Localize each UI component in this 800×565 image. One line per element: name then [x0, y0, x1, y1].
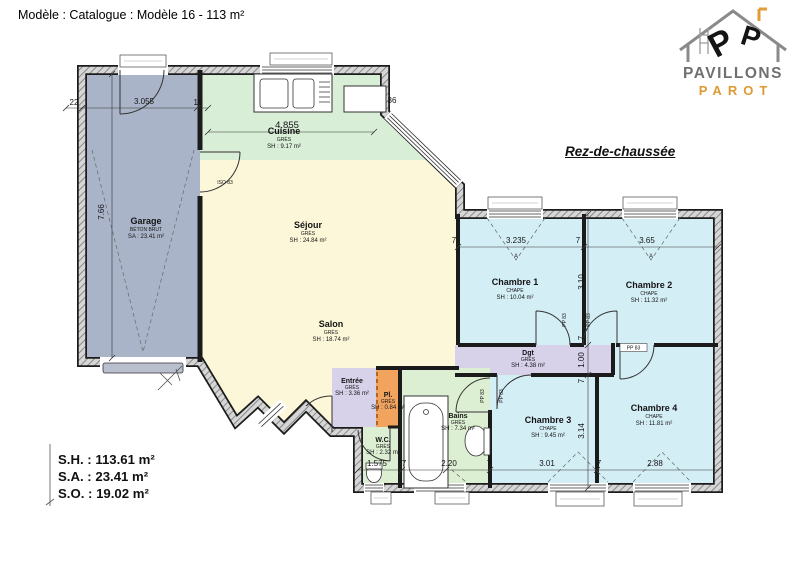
washbasin-counter — [484, 428, 490, 455]
dim-text: 7 — [577, 378, 586, 383]
floor-plan-page: Modèle : Catalogue : Modèle 16 - 113 m² … — [0, 0, 800, 565]
room-material-entree: GRÈS — [345, 384, 360, 391]
room-area-chambre3: SH : 9.45 m² — [531, 433, 565, 439]
sink-bowl-left — [260, 79, 288, 108]
room-material-salon: GRÈS — [324, 329, 339, 336]
dim-text: 3.10 — [577, 274, 586, 290]
room-area-placard: SH : 0.84 m² — [371, 405, 405, 411]
dim-text: 36 — [388, 96, 397, 105]
room-material-dgt: GRÈS — [521, 356, 536, 363]
dim-text: 22 — [70, 98, 79, 107]
room-area-wc: SH : 2.32 m² — [366, 450, 400, 456]
room-area-garage: SA : 23.41 m² — [128, 234, 164, 240]
room-area-chambre2: SH : 11.32 m² — [631, 298, 668, 304]
room-material-bains: GRÈS — [451, 419, 466, 426]
room-name-chambre3: Chambre 3 — [525, 415, 572, 425]
room-area-dgt: SH : 4.38 m² — [511, 363, 545, 369]
pp-door-label: PP 83 — [562, 313, 568, 327]
iso-door-label: ISO 83 — [217, 180, 233, 186]
room-area-chambre1: SH : 10.04 m² — [496, 295, 533, 301]
room-material-cuisine: GRÈS — [277, 136, 292, 143]
room-material-chambre4: CHAPE — [645, 414, 663, 420]
room-material-wc: GRÈS — [376, 443, 391, 450]
dim-text: 1.00 — [577, 352, 586, 368]
window-swing-mark: A — [649, 254, 653, 260]
water-heater — [344, 86, 386, 112]
room-name-salon: Salon — [319, 319, 344, 329]
room-name-sejour: Séjour — [294, 220, 323, 230]
room-name-placard: Pl. — [384, 392, 393, 399]
room-name-cuisine: Cuisine — [268, 126, 301, 136]
dim-text: 3.01 — [539, 459, 555, 468]
dim-text: 15 — [194, 98, 203, 107]
dim-text: 7 — [487, 459, 492, 468]
room-material-chambre2: CHAPE — [640, 291, 658, 297]
pp-door-label: PP 83 — [499, 389, 505, 403]
room-area-sejour: SH : 24.84 m² — [289, 238, 326, 244]
garage-door-leaf — [103, 363, 183, 373]
room-name-chambre4: Chambre 4 — [631, 403, 678, 413]
room-material-garage: BÉTON BRUT — [130, 226, 162, 233]
dim-text: 7 — [452, 236, 457, 245]
room-name-chambre1: Chambre 1 — [492, 277, 539, 287]
dim-text: 7.66 — [97, 204, 106, 220]
room-name-wc: W.C. — [375, 437, 390, 444]
room-material-chambre3: CHAPE — [539, 426, 557, 432]
dim-text: 7 — [577, 335, 586, 340]
room-area-bains: SH : 7.34 m² — [441, 426, 475, 432]
room-name-chambre2: Chambre 2 — [626, 280, 673, 290]
room-name-entree: Entrée — [341, 378, 363, 385]
room-name-dgt: Dgt — [522, 350, 534, 357]
room-area-salon: SH : 18.74 m² — [312, 337, 349, 343]
room-material-chambre1: CHAPE — [506, 288, 524, 294]
room-material-sejour: GRÈS — [301, 230, 316, 237]
dim-text: 7 — [597, 459, 602, 468]
dim-text: 2.88 — [647, 459, 663, 468]
room-area-entree: SH : 3.36 m² — [335, 391, 369, 397]
dim-text: 3.235 — [506, 236, 527, 245]
dim-text: 2.20 — [441, 459, 457, 468]
dim-text: 3.055 — [134, 97, 155, 106]
pp-door-label: PP 83 — [627, 346, 641, 352]
room-name-bains: Bains — [448, 413, 467, 420]
pp-door-label: PP 83 — [586, 313, 592, 327]
dim-text: 3.65 — [639, 236, 655, 245]
room-area-cuisine: SH : 9.17 m² — [267, 144, 301, 150]
dim-text: 7 — [576, 236, 581, 245]
floor-plan-svg: 22 3.055 15 4.855 36 7.66 7 3.235 7 3.65… — [0, 0, 800, 565]
pp-door-label: PP 83 — [480, 389, 486, 403]
room-area-chambre4: SH : 11.81 m² — [636, 421, 673, 427]
window-swing-mark: A — [514, 254, 518, 260]
room-name-garage: Garage — [130, 216, 161, 226]
summary-extension-line — [46, 444, 54, 506]
dim-text: 3.14 — [577, 423, 586, 439]
dim-text: 7 — [402, 459, 407, 468]
dim-text: 1.575 — [367, 459, 388, 468]
sink-bowl-right — [293, 79, 314, 108]
room-material-placard: GRÈS — [381, 398, 396, 405]
